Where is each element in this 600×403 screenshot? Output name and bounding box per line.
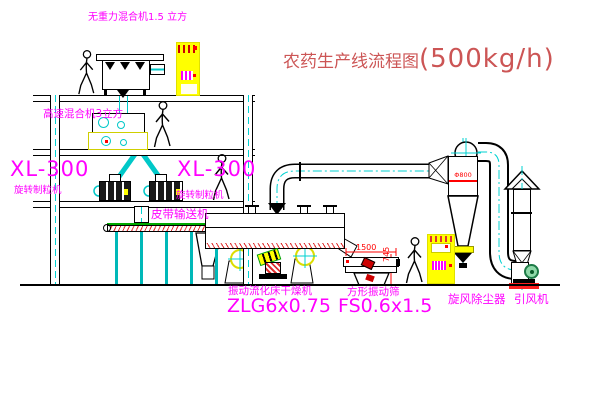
mixer-funnel-icon (135, 62, 145, 70)
exhaust-stack (513, 189, 531, 251)
label-top-mixer: 无重力混合机1.5 立方 (88, 13, 187, 23)
cabinet-indicator (445, 245, 448, 248)
cabinet-display (432, 261, 446, 270)
label-belt-conveyor: 皮带输送机 (151, 209, 209, 221)
control-cabinet-top (176, 42, 200, 96)
page-title: 农药生产线流程图 (500kg/h) (283, 44, 555, 74)
cyclone-weld-line (449, 180, 477, 182)
conveyor-leg (190, 232, 193, 284)
roof-slab (33, 95, 255, 102)
drop-pipe-2 (134, 206, 149, 223)
dryer-pedestal (265, 262, 281, 274)
title-capacity: (500kg/h) (419, 44, 555, 74)
title-text: 农药生产线流程图 (283, 47, 419, 72)
mixer-port (117, 121, 125, 129)
worker-figure (152, 101, 174, 149)
dryer-exhaust-duct (268, 162, 429, 215)
cyclone-outlet-pipe (478, 152, 516, 270)
pulley-icon (120, 139, 127, 146)
granulator-left (99, 181, 131, 201)
label-dryer-model: ZLG6x0.75 (227, 297, 331, 316)
dim-sieve-height: 745 (383, 247, 391, 262)
fan-impeller (524, 264, 539, 279)
conveyor-leg (165, 232, 168, 284)
cabinet-indicator (193, 74, 196, 77)
conveyor-leg (115, 232, 118, 284)
cyclone-cylinder: Φ800 (448, 156, 478, 196)
cabinet-panel (431, 243, 451, 253)
dryer-port-flange (245, 205, 259, 207)
mixer-outlet (150, 64, 165, 75)
cabinet-display (181, 71, 193, 80)
label-cyclone: 旋风除尘器 (448, 294, 506, 306)
label-granulator-left-name: 旋转制粒机 (14, 186, 62, 196)
cabinet-indicator (449, 264, 452, 267)
dim-sieve-length: 1500 (356, 244, 376, 252)
mixer-funnel-icon (120, 62, 130, 70)
dryer-hatch (206, 243, 344, 248)
cyclone-discharge-flange (452, 246, 474, 253)
cabinet-indicator (193, 46, 197, 50)
cyclone-diameter-dim: Φ800 (449, 172, 477, 179)
fan-hub (530, 270, 534, 274)
dryer-hood (205, 213, 345, 228)
cyclone-inlet-taper (429, 156, 448, 184)
pulley-center (105, 140, 108, 143)
label-fan: 引风机 (514, 294, 549, 306)
dryer-port-flange (297, 205, 311, 207)
worker-figure (404, 236, 426, 286)
cyclone-rotary-valve (459, 263, 467, 268)
dryer-port-flange (323, 205, 337, 207)
label-granulator-right-name: 旋转制粒机 (176, 191, 224, 201)
cad-process-flow-drawing: Φ800 农药生产线流程图 (500kg/h) (0, 0, 600, 403)
stack-flange (511, 212, 532, 214)
centerline (141, 207, 142, 222)
high-speed-mixer-base (88, 132, 148, 150)
label-granulator-right-model: XL-300 (177, 159, 256, 180)
dryer-base-plate (259, 274, 287, 279)
granulator-detail (124, 189, 128, 195)
belt-pulley (103, 224, 111, 232)
label-granulator-left-model: XL-300 (10, 159, 89, 180)
mixer-leg (143, 90, 146, 96)
worker-figure (76, 50, 98, 96)
cabinet-detail (430, 236, 452, 242)
mixer-funnel-icon (105, 62, 115, 70)
sieve-detail (346, 260, 349, 263)
label-sieve-model: FS0.6x1.5 (338, 297, 432, 316)
control-cabinet-bottom (427, 234, 455, 284)
sieve-end-cap (396, 259, 400, 266)
dryer-body (205, 227, 345, 249)
right-column (243, 95, 253, 285)
cabinet-panel (181, 84, 197, 94)
mixer-leg (104, 90, 107, 96)
label-high-speed-mixer: 高速混合机3立方 (43, 109, 123, 120)
conveyor-leg (140, 232, 143, 284)
